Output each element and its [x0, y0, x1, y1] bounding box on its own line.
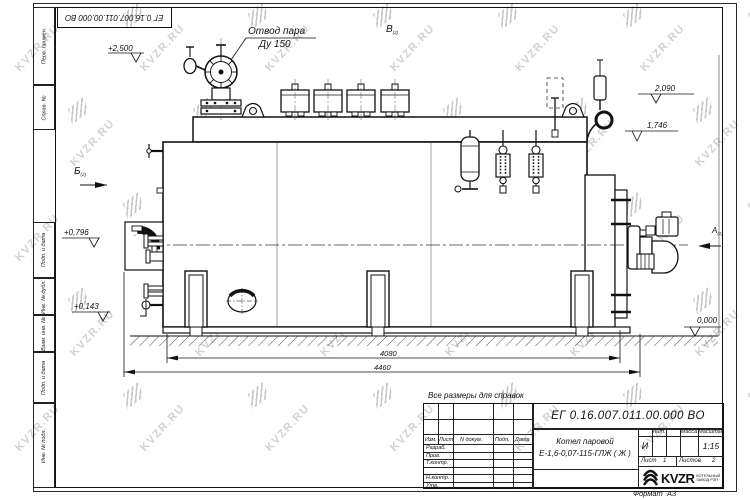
elevation-0143: +0,143 — [74, 302, 99, 311]
callout-steam-outlet-line2: Ду 150 — [259, 39, 291, 50]
tb-header-ndoc: N докум. — [460, 437, 482, 443]
steam-outlet-valve — [184, 38, 241, 120]
top-left-valve — [147, 144, 163, 158]
tb-header-podp: Подп. — [495, 437, 510, 443]
tb-row-utv: Утв. — [426, 483, 439, 489]
tb-row-nkontr: Н.контр. — [426, 475, 449, 481]
kvzr-logo-subtext: КОТЕЛЬНЫЙЗАВОД РЭП — [696, 474, 720, 483]
view-arrow-a — [698, 243, 721, 249]
elevation-2090: 2,090 — [655, 84, 675, 93]
burner-assembly — [628, 212, 678, 273]
ground-hatching — [130, 336, 718, 346]
support-leg — [185, 271, 207, 336]
support-leg — [571, 271, 593, 336]
callout-steam-outlet-line1: Отвод пара — [248, 26, 305, 37]
view-arrow-b — [80, 182, 107, 188]
kvzr-coil-icon — [642, 469, 659, 487]
safety-valves — [281, 79, 409, 120]
tb-product-name: Котел паровой Е-1,6-0,07-115-ГЛЖ ( Ж ) — [532, 430, 638, 466]
format-value: А3 — [667, 489, 676, 498]
tb-listov-label: Листов — [679, 458, 701, 464]
title-block: Изм. Лист N докум. Подп. Дата Разраб. Пр… — [423, 403, 724, 489]
view-label-a: А(2) — [712, 226, 723, 236]
tb-list-value: 1 — [663, 458, 666, 464]
tb-row-prov: Пров. — [426, 453, 441, 459]
tb-lit-label: Лит. — [638, 428, 680, 436]
tb-row-tkontr: Т.контр. — [426, 460, 448, 466]
tb-doc-number: ЕГ 0.16.007.011.00.000 ВО — [532, 404, 724, 428]
dimension-4460: 4460 — [374, 363, 391, 372]
elevation-1746: 1,746 — [647, 121, 667, 130]
skid-base — [163, 327, 630, 333]
drawing-sheet: KVZR.RUKVZR.RUKVZR.RUKVZR.RUKVZR.RUKVZR.… — [0, 0, 750, 500]
steam-drum-platform — [193, 117, 587, 142]
tb-header-list: Лист — [439, 437, 453, 443]
kvzr-logo-text: KVZR — [661, 471, 694, 486]
tb-lit-value: И — [638, 436, 652, 456]
format-label: Формат А3 — [633, 489, 676, 498]
front-nozzles — [144, 188, 163, 298]
burner-fins — [637, 254, 654, 269]
reference-note: Все размеры для справок — [428, 391, 524, 400]
drain-valve — [140, 299, 163, 316]
boiler-body — [150, 117, 688, 336]
elevation-0000: 0,000 — [697, 316, 717, 325]
tb-logo: KVZR КОТЕЛЬНЫЙЗАВОД РЭП — [642, 468, 722, 488]
elevation-2500: +2,500 — [108, 44, 133, 53]
pressure-gauge-siphon — [587, 60, 612, 141]
dimension-4080: 4080 — [380, 349, 397, 358]
support-leg — [367, 271, 389, 336]
tb-massa-label: Масса — [680, 428, 698, 436]
tb-header-izm: Изм. — [425, 437, 437, 443]
elevation-0796: +0,796 — [64, 228, 89, 237]
tb-row-razrab: Разраб. — [426, 445, 446, 451]
lifting-lug — [242, 104, 264, 118]
tb-masshtab-value: 1:15 — [698, 436, 724, 456]
tb-listov-value: 2 — [712, 458, 715, 464]
tb-masshtab-label: Масштаб — [698, 428, 724, 436]
tb-header-data: Дата — [515, 437, 530, 443]
tb-list-label: Лист — [641, 458, 656, 464]
view-label-b: Б(2) — [74, 166, 86, 177]
lifting-lug — [562, 104, 584, 118]
view-label-v: В(2) — [386, 24, 398, 35]
rear-flange-plate — [615, 190, 627, 318]
